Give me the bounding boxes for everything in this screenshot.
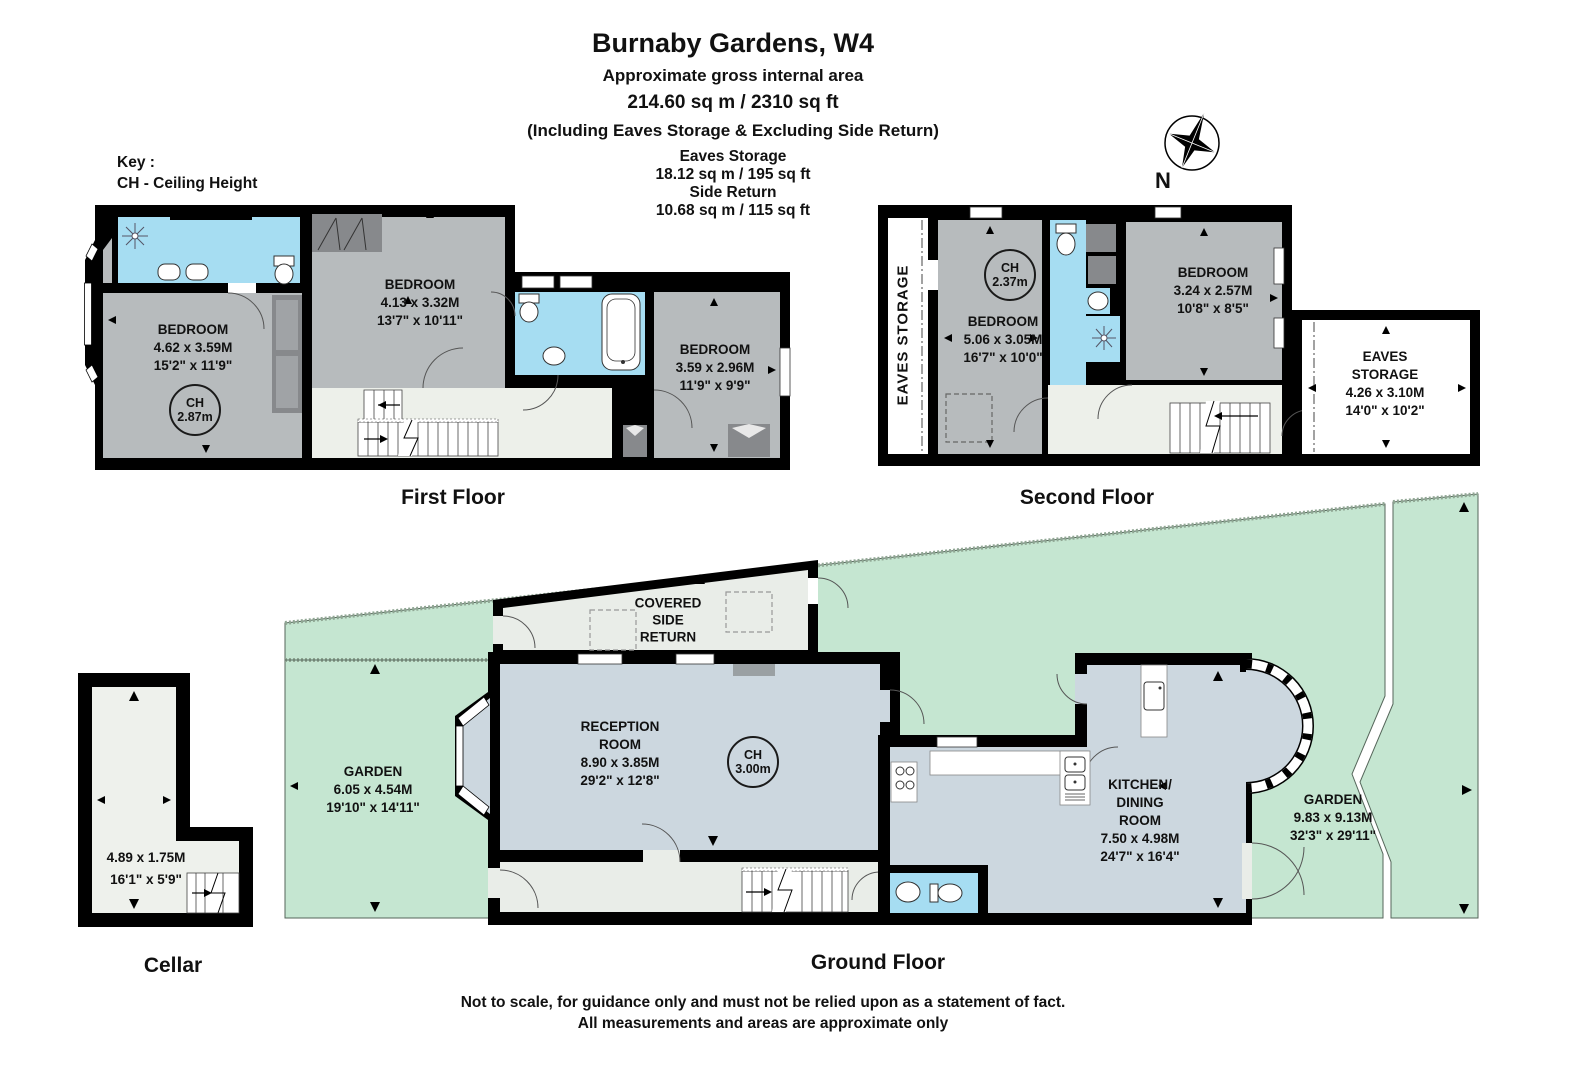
garden-left-label: GARDEN 6.05 x 4.54M 19'10" x 14'11"	[326, 763, 420, 817]
cellar-dims-label: 4.89 x 1.75M 16'1" x 5'9"	[107, 847, 186, 891]
eaves-storage-room-label: EAVES STORAGE 4.26 x 3.10M 14'0" x 10'2"	[1345, 348, 1424, 420]
bedroom-1-label: BEDROOM 4.62 x 3.59M 15'2" x 11'9"	[154, 321, 233, 375]
bedroom-3-label: BEDROOM 3.59 x 2.96M 11'9" x 9'9"	[676, 341, 755, 395]
reception-room-area	[500, 664, 880, 850]
disclaimer-line-2: All measurements and areas are approxima…	[248, 1013, 1278, 1034]
bedroom-4-ceiling-height: CH 2.37m	[984, 249, 1036, 301]
bedroom-4-label: BEDROOM 5.06 x 3.05M 16'7" x 10'0"	[963, 313, 1042, 367]
floorplan-page: Burnaby Gardens, W4 Approximate gross in…	[0, 0, 1575, 1080]
cellar-plan	[68, 658, 268, 933]
eaves-storage-side-label: EAVES STORAGE	[895, 265, 912, 406]
ensuite-bathroom-area	[118, 217, 300, 283]
disclaimer-line-1: Not to scale, for guidance only and must…	[248, 992, 1278, 1013]
cellar-title: Cellar	[144, 954, 202, 978]
compass-north-label: N	[1155, 168, 1171, 194]
eaves-storage-label: Eaves Storage	[527, 148, 939, 166]
gross-area-label: Approximate gross internal area	[527, 66, 939, 86]
page-title: Burnaby Gardens, W4 Approximate gross in…	[527, 28, 939, 220]
key-ch-definition: CH - Ceiling Height	[117, 173, 257, 194]
garden-right-label: GARDEN 9.83 x 9.13M 32'3" x 29'11"	[1290, 791, 1376, 845]
kitchen-dining-label: KITCHEN/ DINING ROOM 7.50 x 4.98M 24'7" …	[1100, 776, 1179, 866]
bedroom-1-ceiling-height: CH 2.87m	[169, 384, 221, 436]
gross-area-value: 214.60 sq m / 2310 sq ft	[527, 92, 939, 114]
property-title: Burnaby Gardens, W4	[527, 28, 939, 59]
bedroom-5-label: BEDROOM 3.24 x 2.57M 10'8" x 8'5"	[1174, 264, 1253, 318]
reception-ceiling-height: CH 3.00m	[727, 736, 779, 788]
ground-floor-plan	[278, 486, 1488, 936]
key-legend: Key : CH - Ceiling Height	[117, 152, 257, 194]
reception-room-label: RECEPTION ROOM 8.90 x 3.85M 29'2" x 12'8…	[580, 718, 659, 790]
key-title: Key :	[117, 152, 257, 173]
covered-side-return-label: COVERED SIDE RETURN	[635, 595, 702, 646]
eaves-storage-value: 18.12 sq m / 195 sq ft	[527, 166, 939, 184]
including-note: (Including Eaves Storage & Excluding Sid…	[527, 121, 939, 141]
bedroom-2-wardrobe	[312, 214, 382, 252]
bedroom-2-label: BEDROOM 4.13 x 3.32M 13'7" x 10'11"	[377, 276, 463, 330]
disclaimer: Not to scale, for guidance only and must…	[248, 992, 1278, 1034]
ground-floor-title: Ground Floor	[811, 951, 945, 975]
